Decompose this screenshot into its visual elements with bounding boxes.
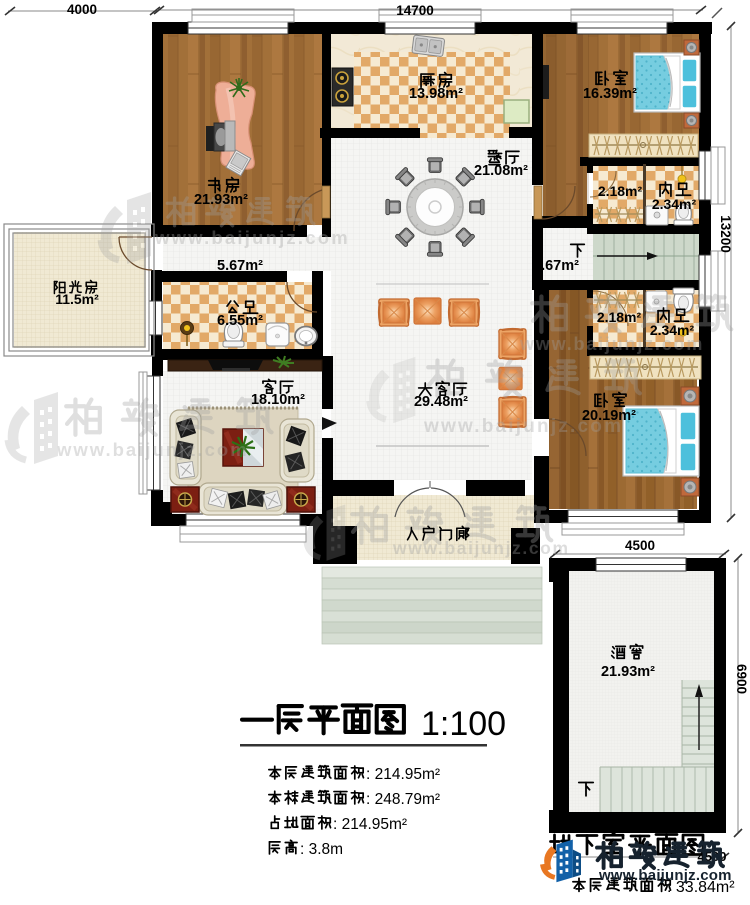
svg-text:20.19m²: 20.19m² [582, 408, 636, 424]
svg-text:6.55m²: 6.55m² [217, 313, 263, 329]
svg-text:www.baijunjz.com: www.baijunjz.com [56, 439, 249, 460]
svg-text:: 3.8m: : 3.8m [300, 841, 343, 858]
svg-text:13.98m²: 13.98m² [409, 86, 463, 102]
svg-text:www.baijunjz.com: www.baijunjz.com [392, 538, 570, 558]
svg-text:16.39m²: 16.39m² [583, 86, 637, 102]
svg-text:14700: 14700 [396, 3, 434, 18]
svg-text:4000: 4000 [67, 2, 97, 17]
svg-text:1:100: 1:100 [421, 705, 506, 743]
svg-text:: 248.79m²: : 248.79m² [366, 791, 440, 808]
svg-text:: 214.95m²: : 214.95m² [366, 766, 440, 783]
svg-text:www.baijunjz.com: www.baijunjz.com [598, 867, 732, 884]
svg-text:2.18m²: 2.18m² [597, 309, 642, 325]
svg-text:21.93m²: 21.93m² [601, 664, 655, 680]
svg-text:2.34m²: 2.34m² [652, 196, 697, 212]
svg-text:21.08m²: 21.08m² [474, 163, 528, 179]
svg-text:2.18m²: 2.18m² [598, 183, 643, 199]
svg-text:11.5m²: 11.5m² [55, 291, 99, 307]
svg-text:2.34m²: 2.34m² [650, 322, 695, 338]
svg-text:4500: 4500 [625, 538, 655, 553]
svg-text:13200: 13200 [718, 215, 733, 253]
svg-text:18.10m²: 18.10m² [251, 392, 305, 408]
svg-text:6900: 6900 [734, 664, 749, 694]
svg-text:5.67m²: 5.67m² [217, 258, 263, 274]
svg-text:: 214.95m²: : 214.95m² [333, 816, 407, 833]
svg-text:21.93m²: 21.93m² [194, 192, 248, 208]
svg-text:5.67m²: 5.67m² [533, 258, 579, 274]
svg-text:www.baijunjz.com: www.baijunjz.com [154, 227, 350, 248]
svg-text:29.48m²: 29.48m² [414, 394, 468, 410]
